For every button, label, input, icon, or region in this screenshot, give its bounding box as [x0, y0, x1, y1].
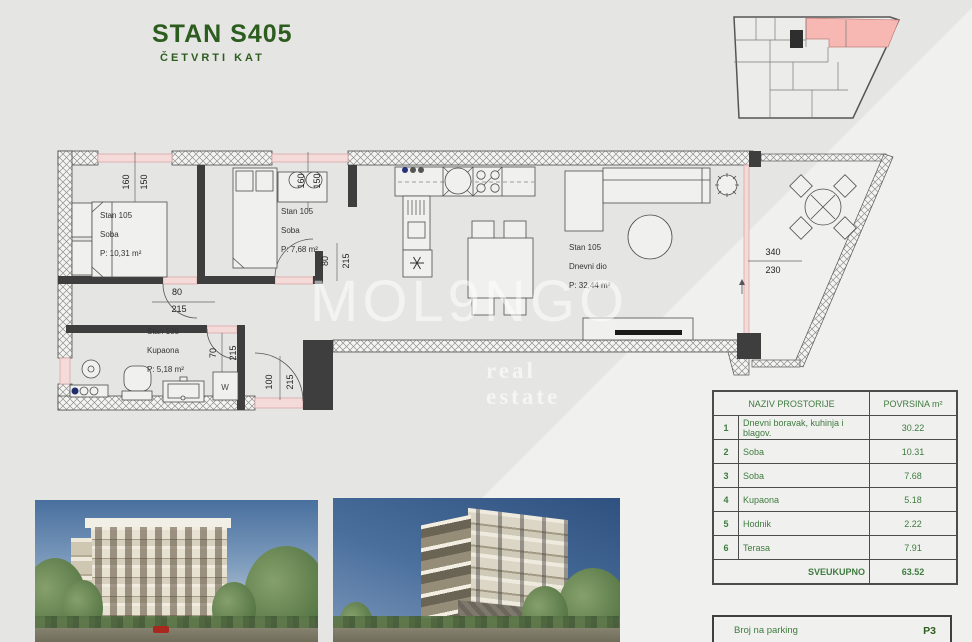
page-title: STAN S405	[152, 20, 293, 49]
dim-label: 150	[139, 169, 149, 195]
tv-unit	[583, 318, 693, 340]
dim-label: 80	[320, 248, 330, 274]
dim-label: 340	[760, 247, 786, 257]
dim-label: 150	[312, 168, 322, 194]
dining-set	[468, 221, 533, 315]
table-row: 6 Terasa 7.91	[713, 536, 957, 560]
row-num: 2	[713, 440, 739, 464]
total-value: 63.52	[870, 560, 958, 585]
red-car	[153, 626, 169, 633]
row-area: 7.91	[870, 536, 958, 560]
building-facade	[91, 527, 227, 623]
render-photo-2	[333, 498, 620, 642]
dim-label: 215	[228, 340, 238, 366]
parking-label: Broj na parking	[714, 625, 923, 636]
row-name: Kupaona	[739, 488, 870, 512]
room-unit: Stan 105	[281, 207, 318, 216]
row-num: 3	[713, 464, 739, 488]
render-photo-1	[35, 500, 318, 642]
row-name: Dnevni boravak, kuhinja i blagov.	[739, 416, 870, 440]
room-label-soba1: Stan 105 Soba P: 10,31 m²	[100, 211, 141, 268]
table-row: 4 Kupaona 5.18	[713, 488, 957, 512]
row-num: 1	[713, 416, 739, 440]
room-area: P: 5,18 m²	[147, 365, 184, 374]
row-area: 10.31	[870, 440, 958, 464]
row-num: 4	[713, 488, 739, 512]
listing-sheet: W STAN S405 ČETVRTI KAT Stan 105 Soba P:…	[0, 0, 972, 642]
room-name: Soba	[281, 226, 318, 235]
total-label: SVEUKUPNO	[713, 560, 870, 585]
area-table: NAZIV PROSTORIJE POVRSINA m² 1 Dnevni bo…	[712, 390, 958, 585]
rug	[628, 215, 672, 259]
row-name: Terasa	[739, 536, 870, 560]
dim-label: 100	[264, 369, 274, 395]
hedge	[35, 616, 318, 628]
parking-value: P3	[923, 625, 950, 637]
header-povrsina: POVRSINA m²	[870, 391, 958, 416]
table-row: 2 Soba 10.31	[713, 440, 957, 464]
row-name: Soba	[739, 464, 870, 488]
row-area: 5.18	[870, 488, 958, 512]
room-label-kupaona: Stan 105 Kupaona P: 5,18 m²	[147, 327, 184, 384]
row-area: 30.22	[870, 416, 958, 440]
room-unit: Stan 105	[100, 211, 141, 220]
table-total-row: SVEUKUPNO 63.52	[713, 560, 957, 585]
dim-label: 230	[760, 265, 786, 275]
row-name: Hodnik	[739, 512, 870, 536]
room-unit: Stan 105	[569, 243, 610, 252]
page-subtitle: ČETVRTI KAT	[160, 52, 265, 64]
key-plan	[734, 17, 899, 118]
table-row: 1 Dnevni boravak, kuhinja i blagov. 30.2…	[713, 416, 957, 440]
row-num: 5	[713, 512, 739, 536]
row-name: Soba	[739, 440, 870, 464]
room-area: P: 10,31 m²	[100, 249, 141, 258]
hedge	[333, 616, 620, 628]
dim-label: 160	[121, 169, 131, 195]
room-name: Kupaona	[147, 346, 184, 355]
room-unit: Stan 105	[147, 327, 184, 336]
room-area: P: 32,44 m²	[569, 281, 610, 290]
room-area: P: 7,68 m²	[281, 245, 318, 254]
dim-label: 215	[285, 369, 295, 395]
dim-label: 70	[208, 340, 218, 366]
dim-label: 215	[166, 304, 192, 314]
row-area: 2.22	[870, 512, 958, 536]
washer-label: W	[221, 383, 229, 392]
table-row: 3 Soba 7.68	[713, 464, 957, 488]
room-name: Soba	[100, 230, 141, 239]
room-label-soba2: Stan 105 Soba P: 7,68 m²	[281, 207, 318, 264]
plant-icon	[715, 173, 739, 197]
table-row: 5 Hodnik 2.22	[713, 512, 957, 536]
dim-label: 80	[164, 287, 190, 297]
parking-box: Broj na parking P3	[712, 615, 952, 642]
dim-label: 215	[341, 248, 351, 274]
room-name: Dnevni dio	[569, 262, 610, 271]
dim-label: 160	[296, 168, 306, 194]
row-num: 6	[713, 536, 739, 560]
terrace-furniture	[790, 175, 857, 240]
room-label-dnevni: Stan 105 Dnevni dio P: 32,44 m²	[569, 243, 610, 300]
header-naziv: NAZIV PROSTORIJE	[713, 391, 870, 416]
table-header-row: NAZIV PROSTORIJE POVRSINA m²	[713, 391, 957, 416]
row-area: 7.68	[870, 464, 958, 488]
